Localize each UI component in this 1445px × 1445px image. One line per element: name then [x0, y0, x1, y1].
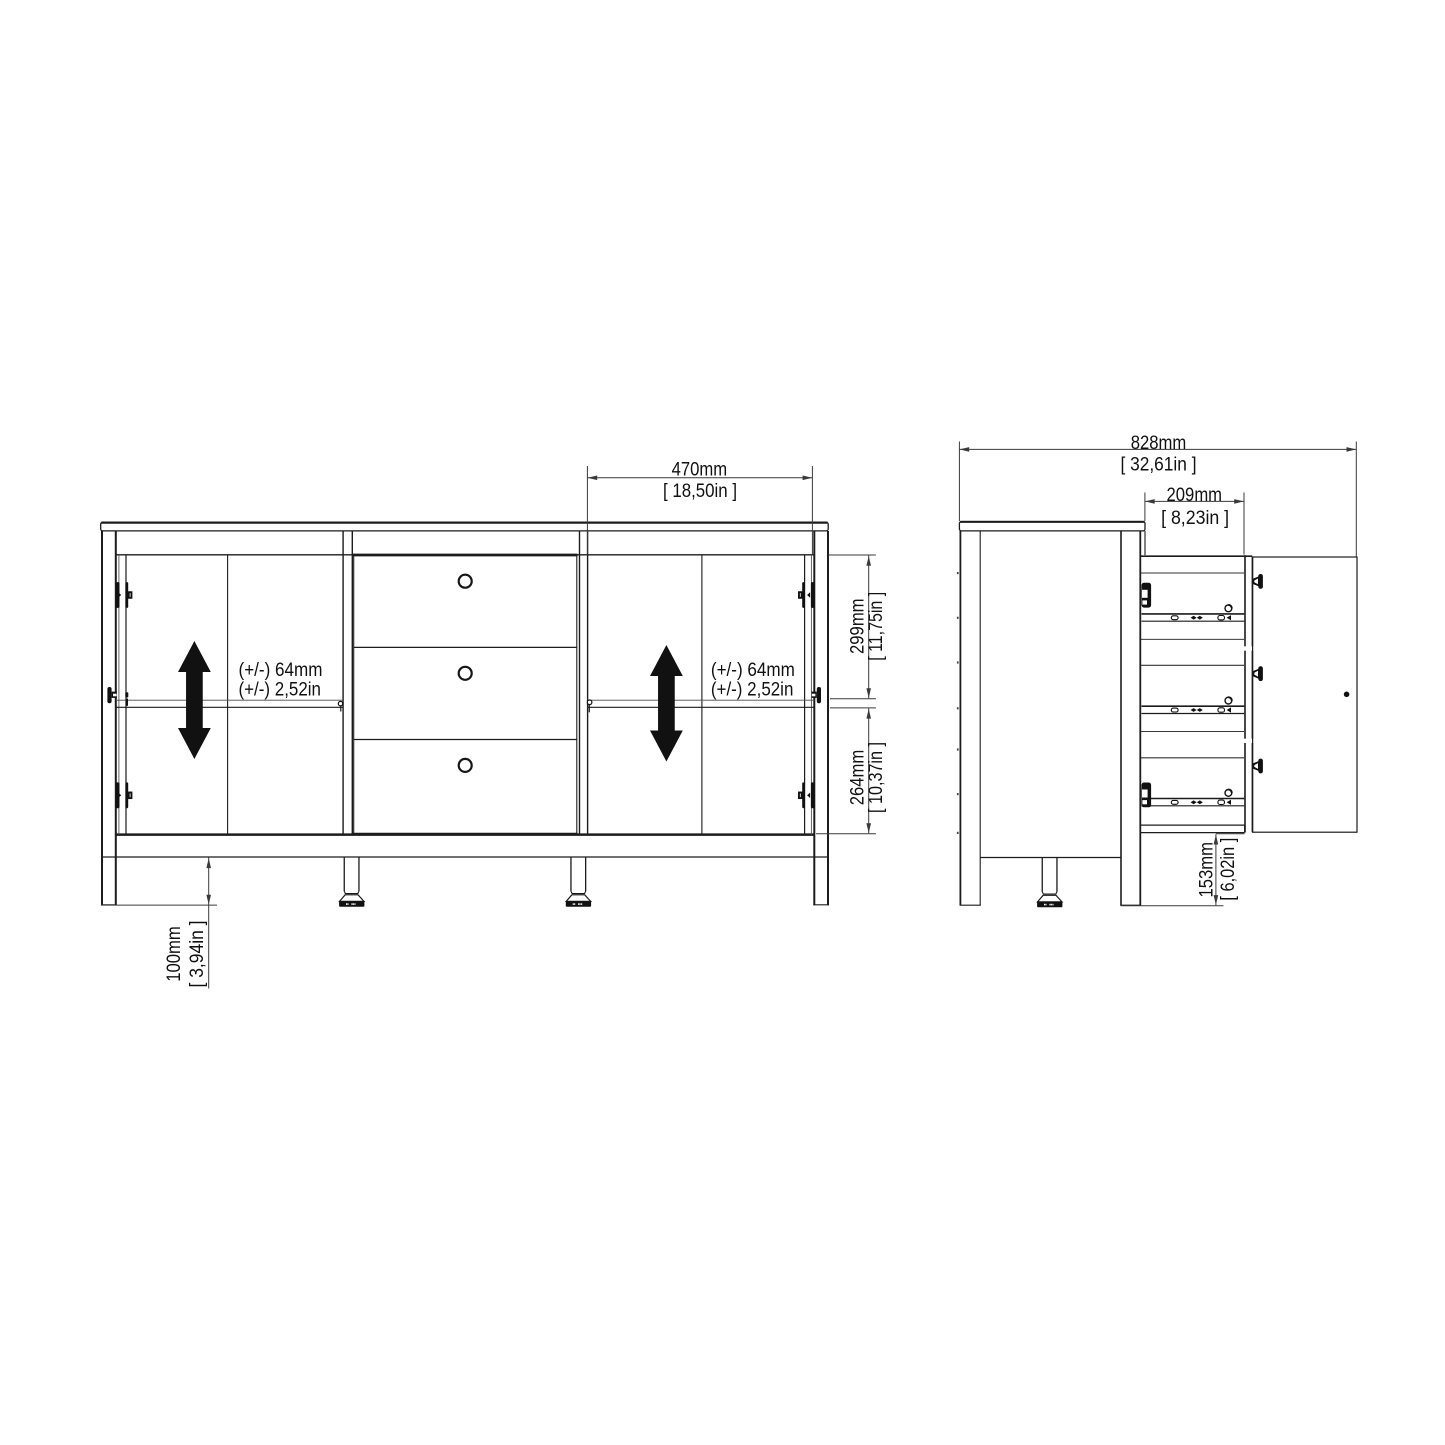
- svg-text:209mm: 209mm: [1167, 485, 1223, 506]
- svg-text:100mm: 100mm: [164, 926, 185, 982]
- svg-text:(+/-) 2,52in: (+/-) 2,52in: [239, 679, 322, 700]
- svg-text:153mm: 153mm: [1197, 842, 1218, 898]
- svg-text:(+/-) 64mm: (+/-) 64mm: [239, 660, 323, 681]
- svg-text:[ 3,94in ]: [ 3,94in ]: [187, 921, 208, 988]
- svg-text:(+/-) 2,52in: (+/-) 2,52in: [711, 679, 794, 700]
- svg-text:828mm: 828mm: [1131, 433, 1187, 454]
- svg-text:[ 18,50in ]: [ 18,50in ]: [663, 481, 737, 502]
- svg-text:470mm: 470mm: [672, 459, 728, 480]
- svg-text:[ 6,02in ]: [ 6,02in ]: [1218, 838, 1239, 901]
- svg-text:[ 8,23in ]: [ 8,23in ]: [1161, 508, 1229, 529]
- svg-text:[ 11,75in ]: [ 11,75in ]: [866, 592, 887, 661]
- svg-text:(+/-) 64mm: (+/-) 64mm: [711, 660, 795, 681]
- svg-text:[ 10,37in ]: [ 10,37in ]: [866, 742, 887, 813]
- svg-text:[ 32,61in ]: [ 32,61in ]: [1121, 454, 1197, 475]
